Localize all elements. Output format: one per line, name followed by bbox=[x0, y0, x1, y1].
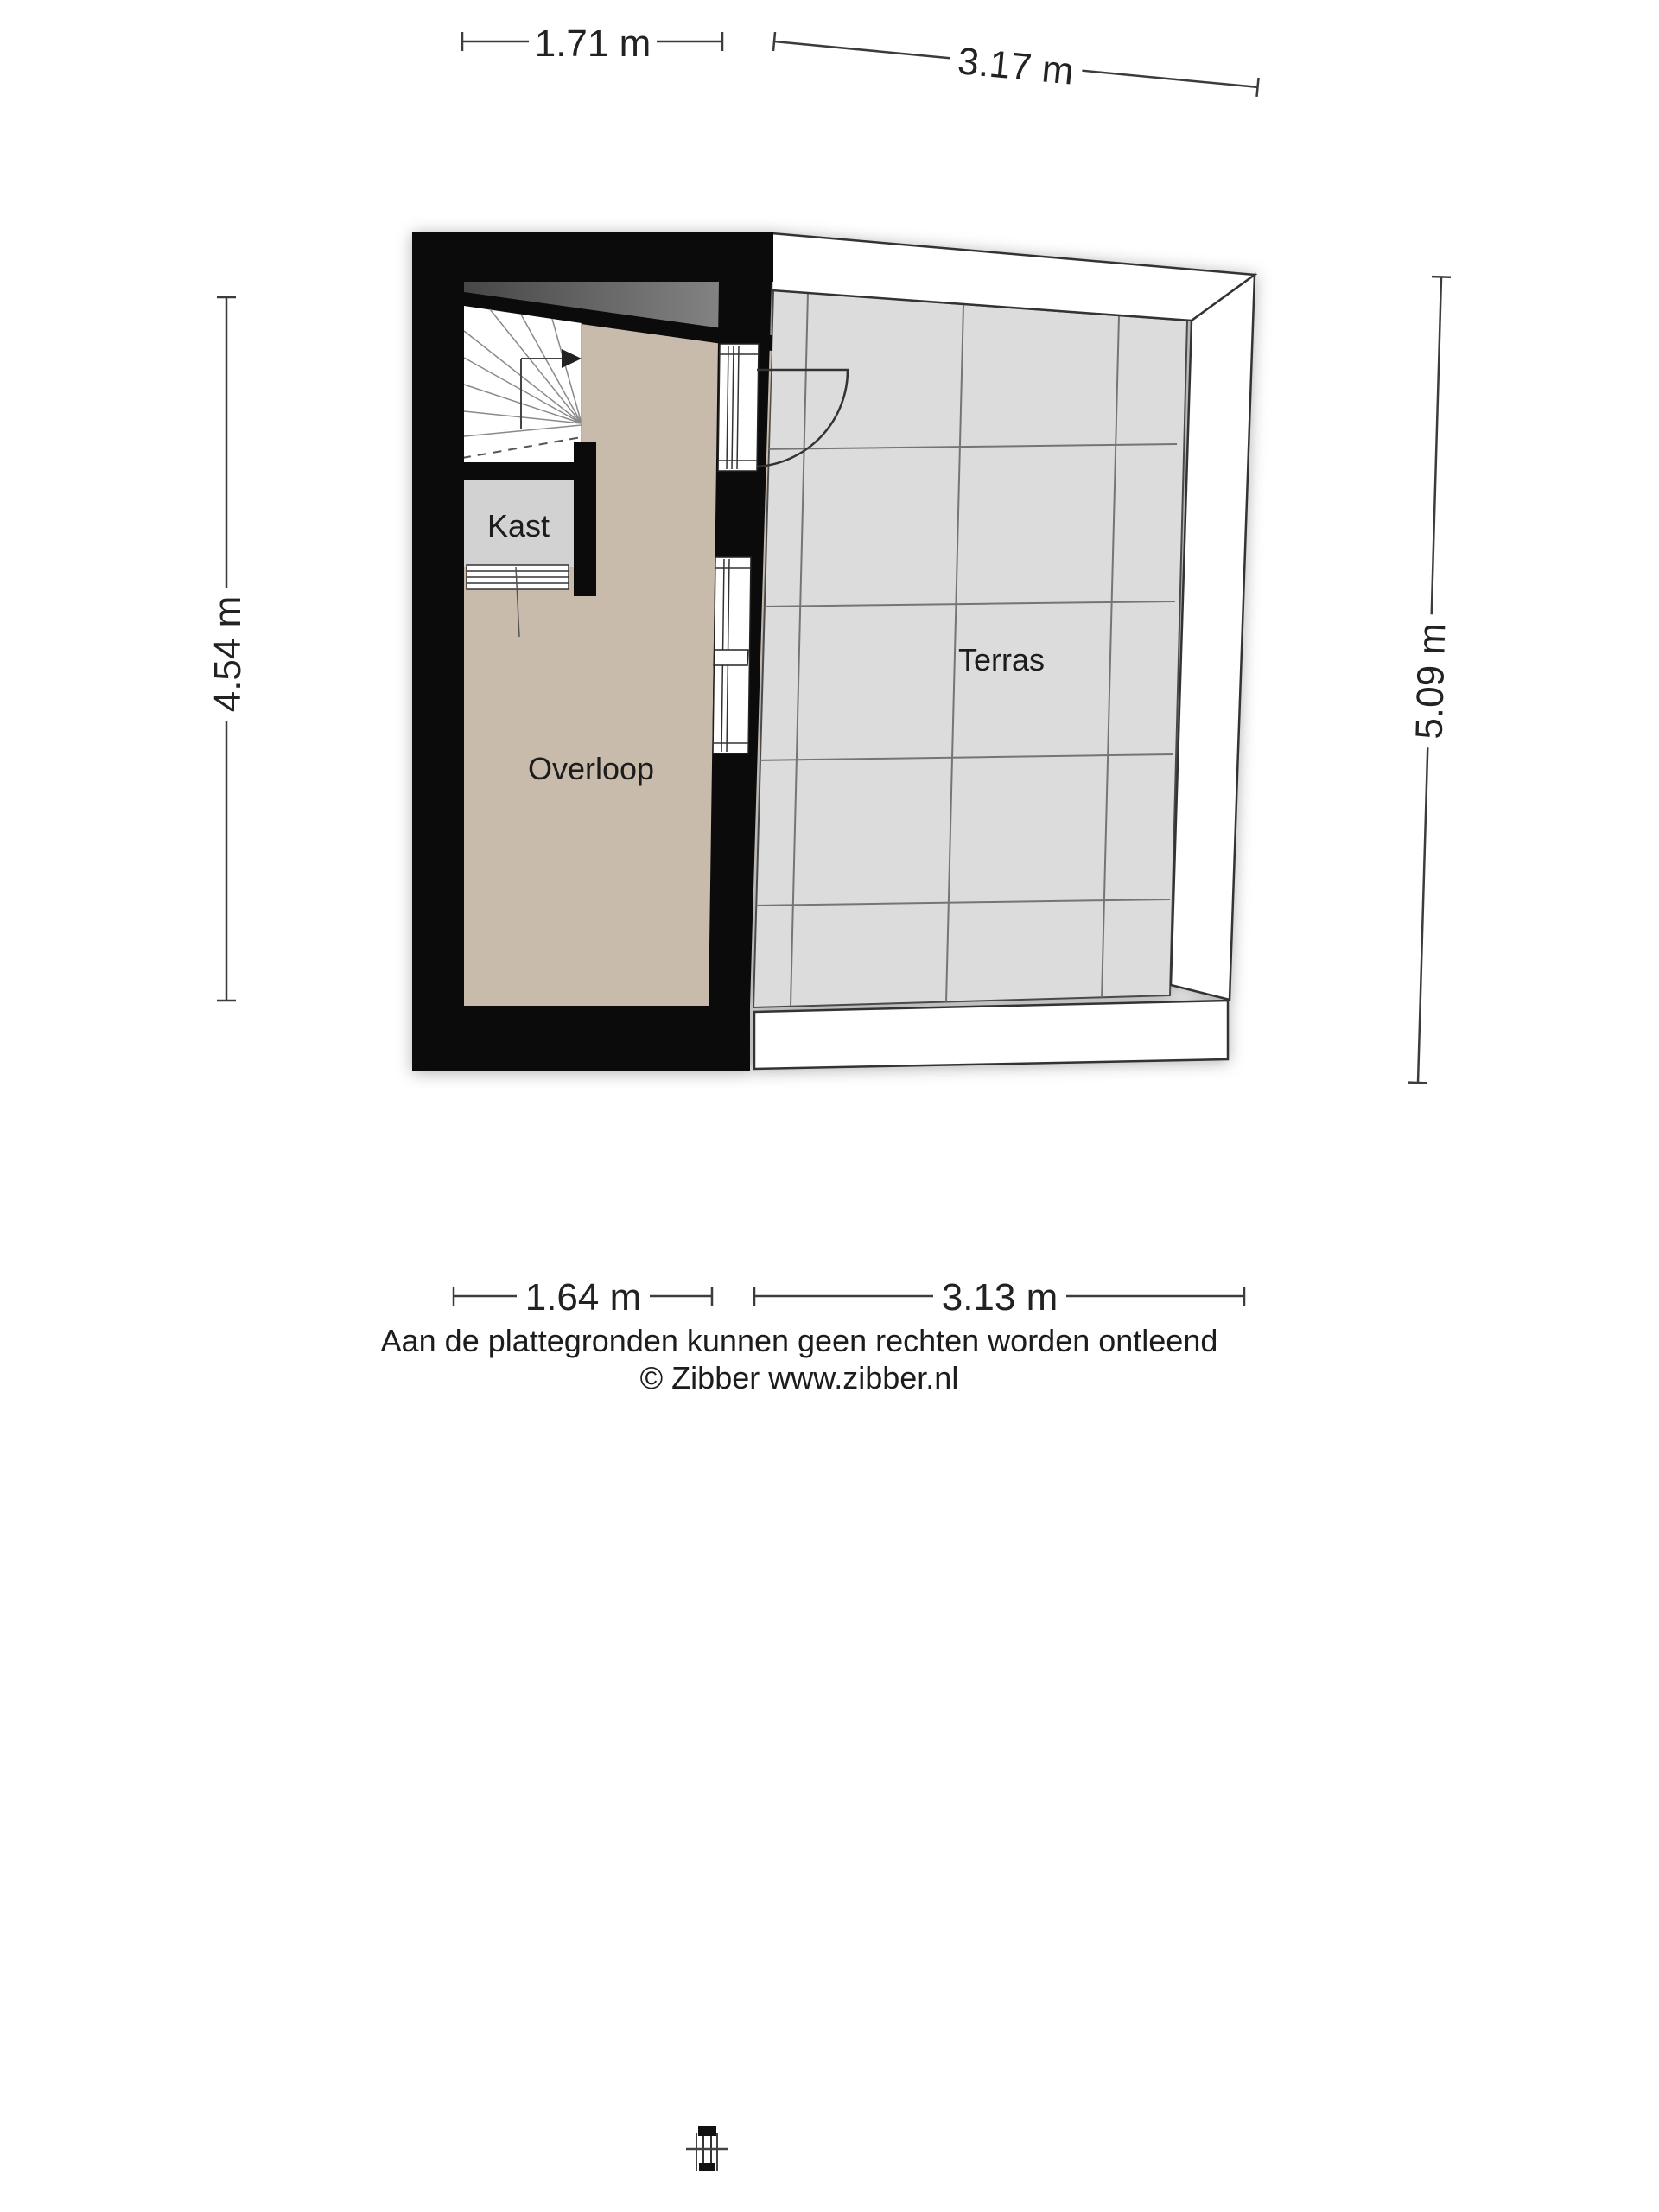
dimension-label: 5.09 m bbox=[1408, 622, 1454, 740]
floorplan-drawing bbox=[412, 232, 1255, 1071]
floorplan-canvas: Kast Overloop Terras 1.71 m 3.17 m 4.54 … bbox=[0, 0, 1659, 2212]
dimension-label: 4.54 m bbox=[207, 596, 249, 713]
dimension-top-terras: 3.17 m bbox=[772, 22, 1259, 111]
footer-disclaimer: Aan de plattegronden kunnen geen rechten… bbox=[381, 1323, 1218, 1358]
dimension-top-overloop: 1.71 m bbox=[462, 22, 722, 65]
footer-copyright: © Zibber www.zibber.nl bbox=[640, 1360, 959, 1395]
stairs-floor bbox=[464, 306, 582, 462]
overloop-window-icon bbox=[713, 557, 751, 753]
room-label-terras: Terras bbox=[958, 642, 1045, 677]
dimension-left: 4.54 m bbox=[207, 297, 249, 1001]
room-label-overloop: Overloop bbox=[528, 751, 654, 786]
wall-stairs-kast bbox=[449, 462, 577, 480]
dimension-label: 1.64 m bbox=[525, 1276, 642, 1319]
dimension-bottom-overloop: 1.64 m bbox=[454, 1276, 712, 1319]
terras-railing-bottom bbox=[754, 1001, 1228, 1069]
cropped-window-symbol-icon bbox=[686, 2126, 728, 2171]
dimension-label: 3.13 m bbox=[942, 1276, 1058, 1319]
staircase bbox=[462, 306, 582, 462]
dimension-bottom-terras: 3.13 m bbox=[754, 1276, 1244, 1319]
room-label-kast: Kast bbox=[487, 508, 550, 543]
dimension-label: 1.71 m bbox=[535, 22, 652, 65]
dimension-label: 3.17 m bbox=[956, 40, 1076, 92]
dimension-right: 5.09 m bbox=[1398, 276, 1464, 1084]
wall-kast-right bbox=[574, 442, 596, 596]
